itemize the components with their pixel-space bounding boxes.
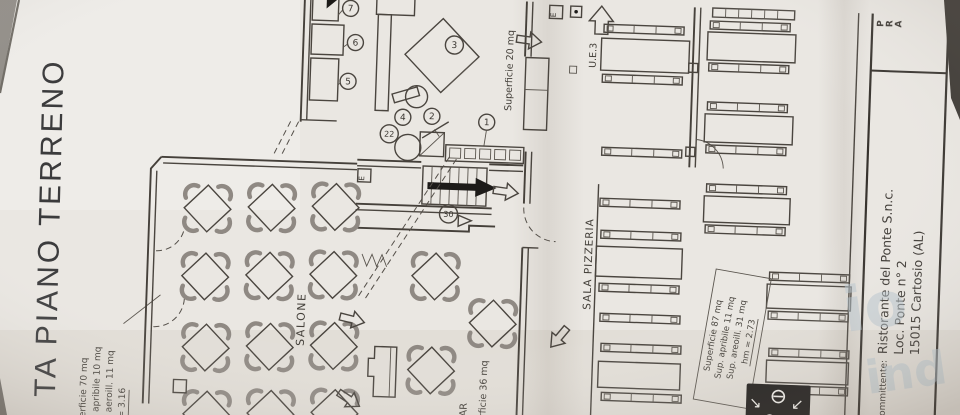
photo-vignette bbox=[0, 0, 960, 415]
floor-plan-svg: TA PIANO TERRENO Superficie 70 mq Sup. a… bbox=[0, 0, 960, 415]
scanned-floor-plan-photo: TA PIANO TERRENO Superficie 70 mq Sup. a… bbox=[0, 0, 960, 415]
